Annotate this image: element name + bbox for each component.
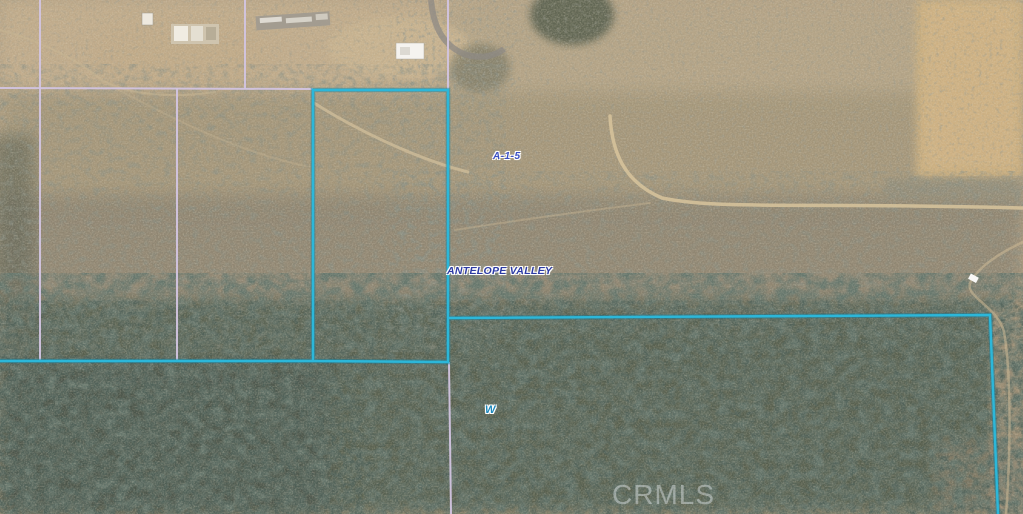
map-viewport[interactable]: A-1-5 ANTELOPE VALLEY W CRMLS: [0, 0, 1023, 514]
aerial-imagery: [0, 0, 1023, 514]
parcel-line: [0, 88, 313, 89]
building-left: [171, 24, 219, 44]
terrain-texture: [0, 0, 1023, 514]
small-shed: [142, 13, 153, 25]
